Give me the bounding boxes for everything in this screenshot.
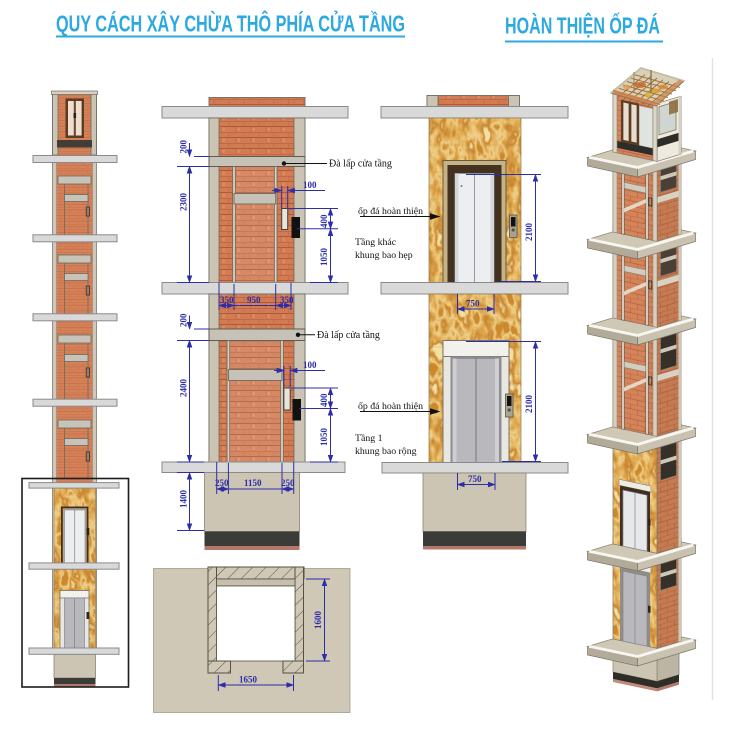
svg-text:2100: 2100 [524,223,534,242]
svg-text:1400: 1400 [179,490,189,509]
svg-text:1050: 1050 [319,248,329,267]
svg-text:2300: 2300 [179,193,189,212]
svg-text:400: 400 [319,214,329,228]
svg-text:250: 250 [281,478,295,488]
svg-text:350: 350 [280,295,294,305]
svg-text:Đà lấp cửa tầng: Đà lấp cửa tầng [329,159,392,170]
svg-text:1050: 1050 [319,428,329,447]
svg-text:250: 250 [215,478,229,488]
svg-text:950: 950 [247,295,261,305]
svg-text:750: 750 [466,299,480,309]
svg-text:750: 750 [468,474,482,484]
svg-text:100: 100 [303,180,317,190]
svg-text:khung bao rộng: khung bao rộng [355,446,417,457]
svg-text:Tầng 1: Tầng 1 [355,433,383,444]
svg-text:1150: 1150 [244,478,262,488]
svg-text:1600: 1600 [313,611,323,630]
svg-text:350: 350 [220,295,234,305]
svg-text:khung bao hẹp: khung bao hẹp [355,250,413,261]
svg-text:2400: 2400 [179,379,189,398]
svg-text:200: 200 [179,313,189,327]
svg-text:QUY CÁCH XÂY CHỪA THÔ PHÍA CỬA: QUY CÁCH XÂY CHỪA THÔ PHÍA CỬA TẦNG [56,9,405,37]
svg-text:1650: 1650 [239,675,258,685]
svg-text:Đà lấp cửa tầng: Đà lấp cửa tầng [317,330,380,341]
svg-text:100: 100 [303,360,317,370]
svg-text:ốp đá hoàn thiện: ốp đá hoàn thiện [358,401,423,412]
svg-text:ốp đá hoàn thiện: ốp đá hoàn thiện [358,206,423,217]
svg-text:400: 400 [319,393,329,407]
svg-text:2100: 2100 [524,395,534,414]
svg-text:HOÀN THIỆN ỐP ĐÁ: HOÀN THIỆN ỐP ĐÁ [505,12,660,39]
svg-text:200: 200 [179,140,189,154]
svg-text:Tầng khác: Tầng khác [355,237,397,248]
